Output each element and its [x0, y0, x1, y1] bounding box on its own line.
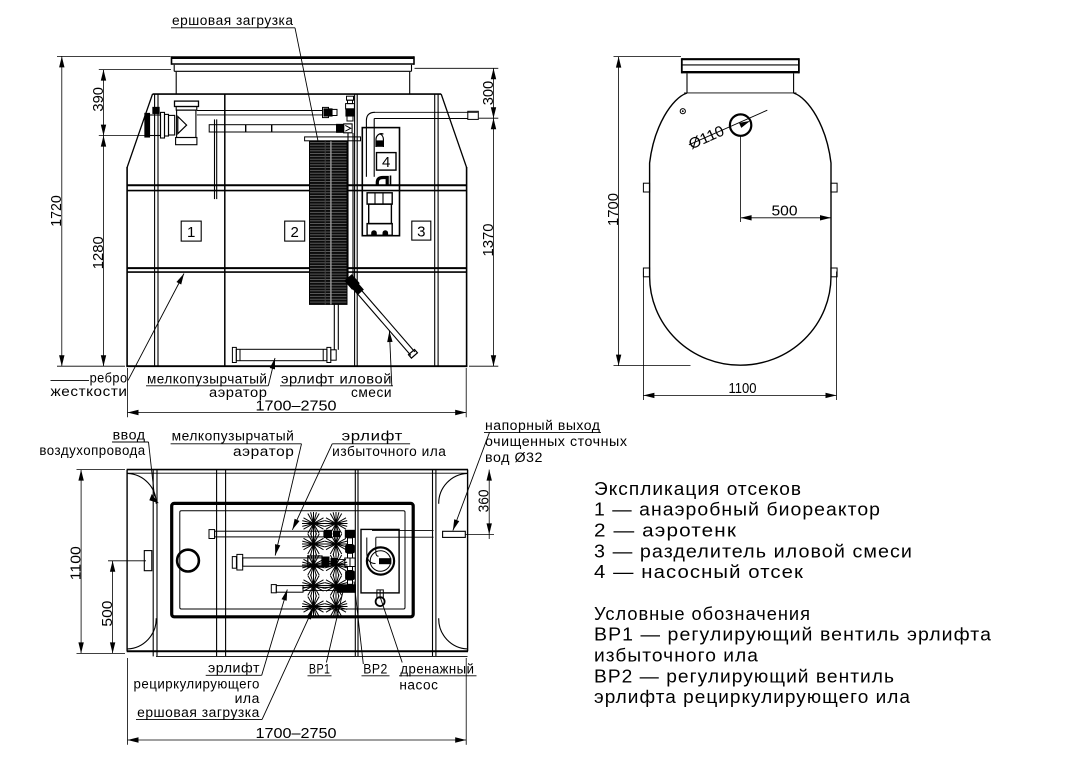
svg-text:1100: 1100 — [729, 380, 757, 397]
svg-text:напорный выход: напорный выход — [485, 418, 601, 433]
svg-text:1100: 1100 — [68, 546, 85, 580]
svg-text:рециркулирующего: рециркулирующего — [134, 677, 260, 692]
svg-text:1700: 1700 — [605, 193, 622, 226]
svg-text:эрлифта рециркулирующего ила: эрлифта рециркулирующего ила — [594, 686, 911, 707]
svg-text:1370: 1370 — [480, 224, 497, 257]
svg-text:очищенных сточных: очищенных сточных — [485, 434, 628, 449]
svg-text:ершовая загрузка: ершовая загрузка — [172, 13, 294, 28]
svg-text:ила: ила — [235, 691, 260, 706]
svg-text:390: 390 — [90, 87, 107, 112]
svg-text:ВР1 — регулирующий вентиль эрл: ВР1 — регулирующий вентиль эрлифта — [594, 624, 992, 645]
svg-text:вод Ø32: вод Ø32 — [485, 450, 543, 465]
svg-text:4: 4 — [382, 154, 390, 171]
svg-text:дренажный: дренажный — [400, 661, 474, 676]
svg-text:1280: 1280 — [90, 236, 107, 269]
svg-text:3: 3 — [417, 223, 425, 240]
svg-text:4 — насосный отсек: 4 — насосный отсек — [594, 561, 804, 582]
svg-text:3 — разделитель иловой смеси: 3 — разделитель иловой смеси — [594, 540, 913, 561]
svg-text:ВР2 — регулирующий вентиль: ВР2 — регулирующий вентиль — [594, 665, 895, 686]
svg-text:1700–2750: 1700–2750 — [256, 398, 337, 415]
svg-text:воздухопровода: воздухопровода — [39, 443, 145, 458]
svg-text:Экспликация отсеков: Экспликация отсеков — [594, 478, 802, 499]
svg-text:аэратор: аэратор — [209, 385, 268, 400]
svg-text:1700–2750: 1700–2750 — [256, 725, 337, 742]
svg-text:2 — аэротенк: 2 — аэротенк — [594, 520, 737, 541]
svg-text:жесткости: жесткости — [51, 384, 128, 399]
svg-text:ВР1: ВР1 — [309, 661, 331, 676]
svg-text:300: 300 — [480, 81, 497, 106]
svg-text:2: 2 — [291, 224, 299, 241]
svg-text:аэратор: аэратор — [233, 444, 294, 459]
svg-text:насос: насос — [399, 678, 438, 693]
svg-text:ВР2: ВР2 — [363, 661, 388, 676]
svg-text:избыточного ила: избыточного ила — [332, 444, 446, 459]
svg-text:1: 1 — [187, 224, 195, 241]
svg-text:500: 500 — [772, 203, 798, 220]
svg-text:мелкопузырчатый: мелкопузырчатый — [172, 429, 295, 444]
svg-text:эрлифт: эрлифт — [342, 429, 403, 444]
svg-text:эрлифт: эрлифт — [208, 661, 260, 676]
svg-text:360: 360 — [476, 489, 493, 512]
svg-text:ершовая загрузка: ершовая загрузка — [137, 705, 260, 720]
svg-text:1720: 1720 — [48, 195, 65, 227]
svg-text:Условные обозначения: Условные обозначения — [594, 603, 811, 624]
svg-text:500: 500 — [99, 601, 116, 627]
svg-text:смеси: смеси — [351, 385, 392, 400]
svg-text:1 — анаэробный биореактор: 1 — анаэробный биореактор — [594, 499, 881, 520]
svg-text:избыточного ила: избыточного ила — [594, 645, 759, 666]
svg-text:ввод: ввод — [113, 428, 146, 443]
